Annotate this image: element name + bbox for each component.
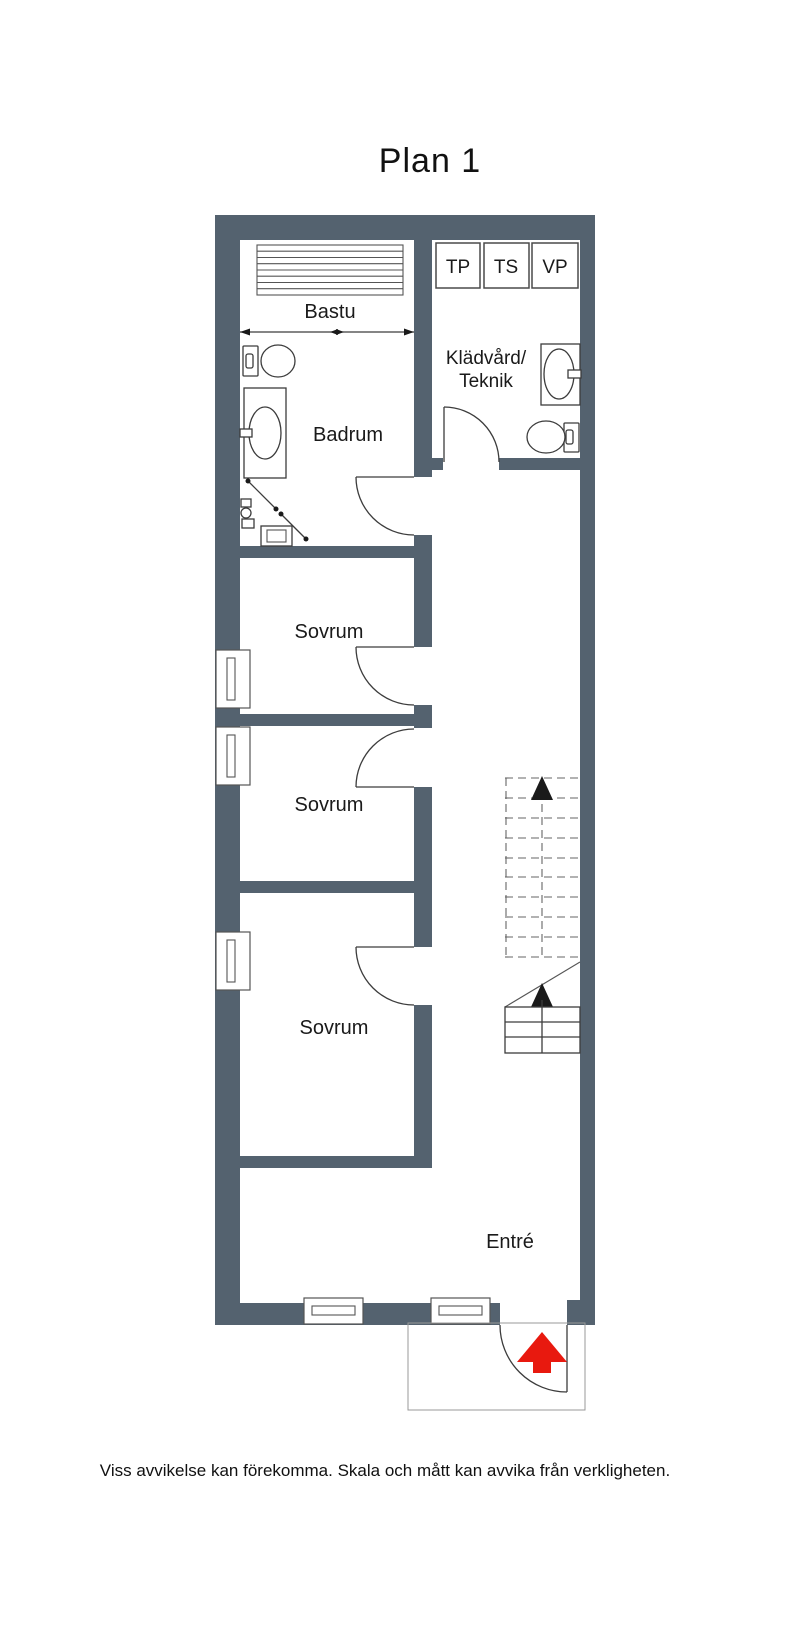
door-arc-badrum <box>356 477 414 535</box>
porch-outline <box>408 1323 585 1410</box>
wall-sovrum1-sovrum2 <box>240 714 414 726</box>
wall-badrum-bottom <box>240 546 414 558</box>
up-arrow-icon <box>531 776 553 800</box>
room-label-kladvard-line1: Klädvård/ <box>446 348 527 369</box>
wall-bottom-right-stub <box>567 1300 595 1325</box>
sauna-bench-icon <box>257 245 403 295</box>
stairs-lower-steps <box>505 1000 580 1053</box>
door-arc-kladvard <box>444 407 499 462</box>
room-label-sovrum-3: Sovrum <box>300 1017 369 1039</box>
stairs <box>505 776 580 1053</box>
window-icon <box>216 932 250 990</box>
closet-ts-label: TS <box>494 257 518 278</box>
kladvard-fixtures <box>527 344 581 453</box>
door-openings <box>413 457 567 1326</box>
closet-boxes: TP TS VP <box>436 243 578 288</box>
window-icon <box>216 650 250 708</box>
windows <box>216 650 490 1324</box>
wall-top <box>215 215 595 240</box>
floor-drain-icon <box>261 526 292 546</box>
closet-vp-label: VP <box>542 257 567 278</box>
sink-icon <box>541 344 581 405</box>
window-icon <box>304 1298 363 1324</box>
wall-right <box>580 215 595 1325</box>
disclaimer-text: Viss avvikelse kan förekomma. Skala och … <box>0 1461 770 1481</box>
stairs-upper-flight-dashed <box>505 778 579 957</box>
wall-sovrum3-bottom <box>215 1156 432 1168</box>
door-arc-sovrum2 <box>356 729 414 787</box>
toilet-icon <box>527 421 579 453</box>
toilet-icon <box>243 345 295 377</box>
window-icon <box>431 1298 490 1324</box>
floorplan-page: Plan 1 <box>0 0 800 1637</box>
door-arc-sovrum1 <box>356 647 414 705</box>
entry-porch <box>408 1323 585 1410</box>
sink-icon <box>240 388 286 478</box>
room-label-badrum: Badrum <box>313 424 383 446</box>
room-label-sovrum-2: Sovrum <box>295 794 364 816</box>
door-arc-sovrum3 <box>356 947 414 1005</box>
badrum-fixtures <box>240 345 309 546</box>
window-icon <box>216 727 250 785</box>
room-label-sovrum-1: Sovrum <box>295 621 364 643</box>
closet-tp-label: TP <box>446 257 470 278</box>
bastu-partition <box>240 329 414 336</box>
room-label-entre: Entré <box>486 1231 534 1253</box>
floorplan-canvas: TP TS VP <box>0 0 800 1637</box>
room-label-kladvard-line2: Teknik <box>459 371 513 392</box>
entry-arrow-icon <box>517 1332 567 1373</box>
room-label-bastu: Bastu <box>304 301 355 323</box>
wall-sovrum2-sovrum3 <box>240 881 414 893</box>
